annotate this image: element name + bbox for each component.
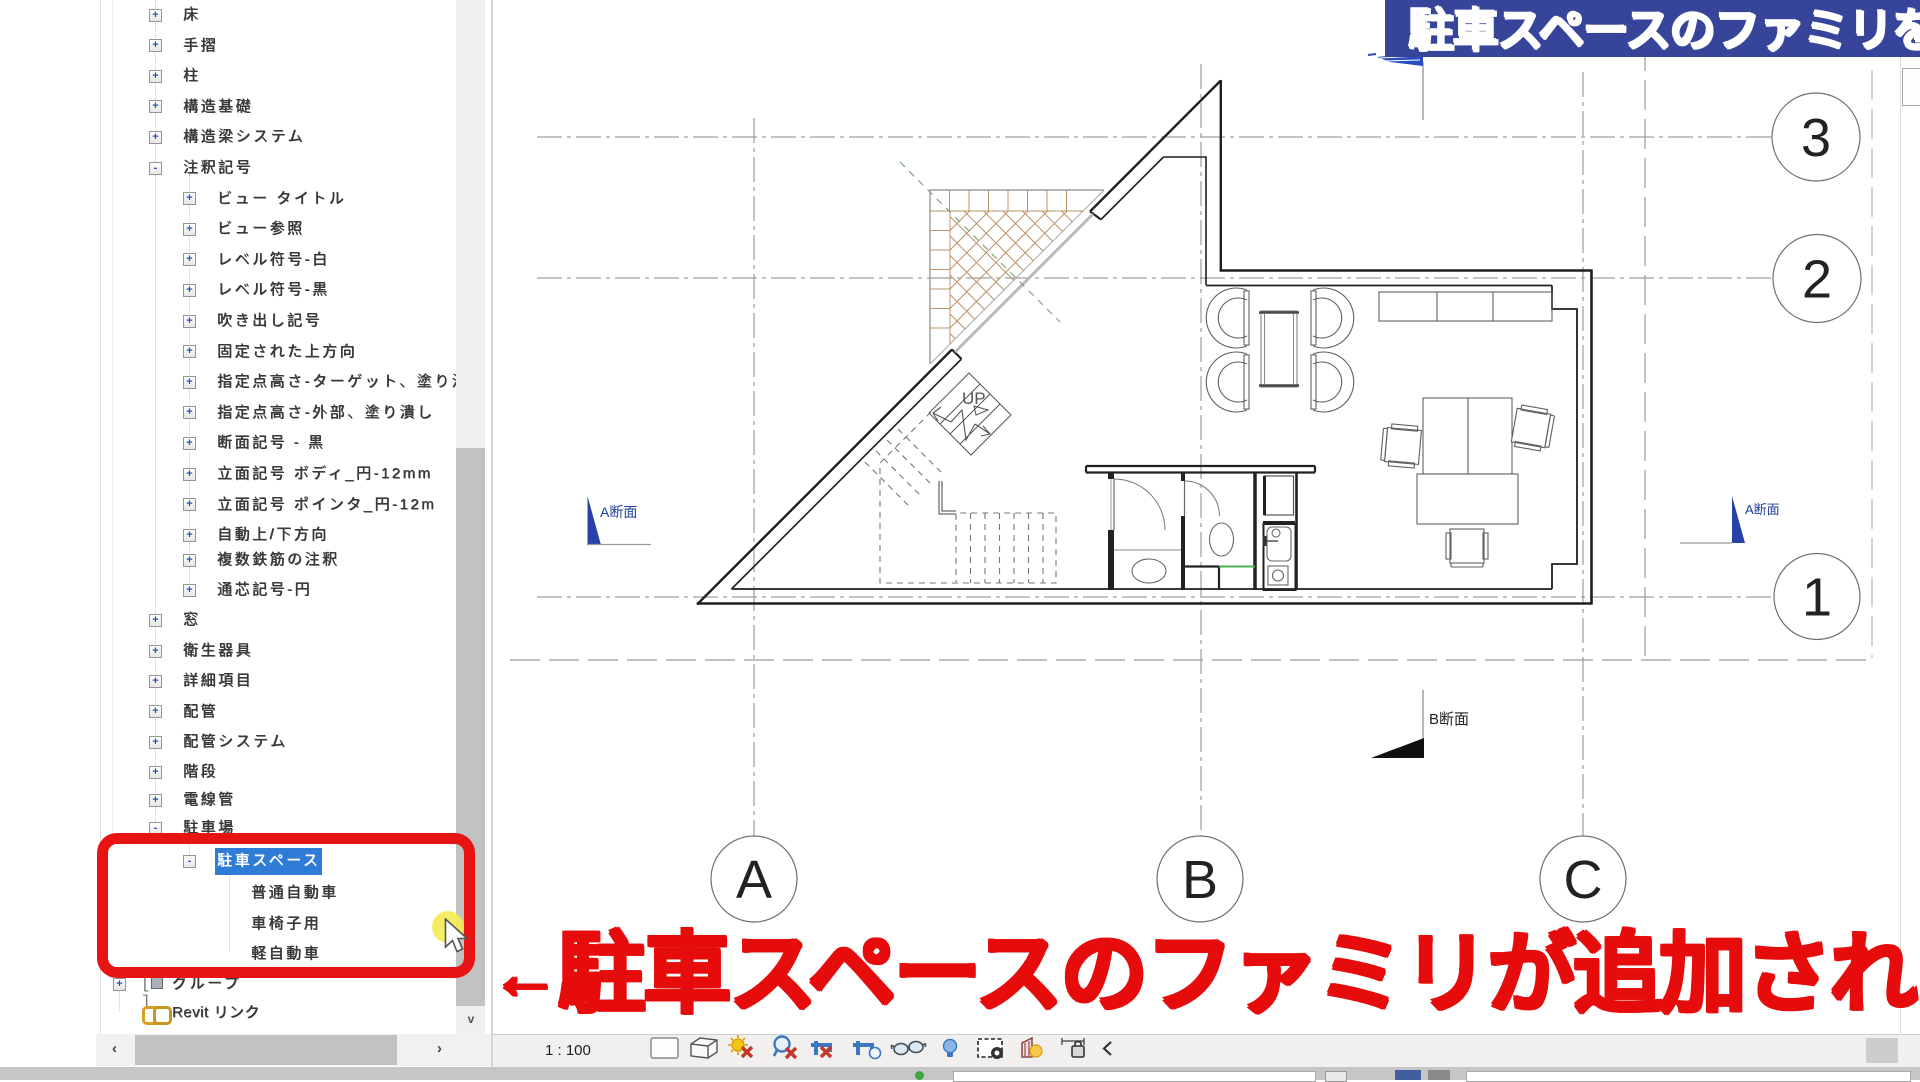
svg-text:UP: UP	[962, 389, 986, 408]
svg-text:B断面: B断面	[1429, 711, 1469, 728]
svg-text:A: A	[736, 850, 772, 910]
svg-text:2: 2	[1802, 250, 1832, 310]
svg-text:1: 1	[1802, 568, 1832, 628]
svg-text:B: B	[1182, 850, 1218, 910]
svg-text:A断面: A断面	[1745, 502, 1780, 517]
svg-text:A断面: A断面	[600, 504, 637, 520]
svg-text:C: C	[1564, 850, 1603, 910]
svg-text:3: 3	[1801, 108, 1831, 168]
